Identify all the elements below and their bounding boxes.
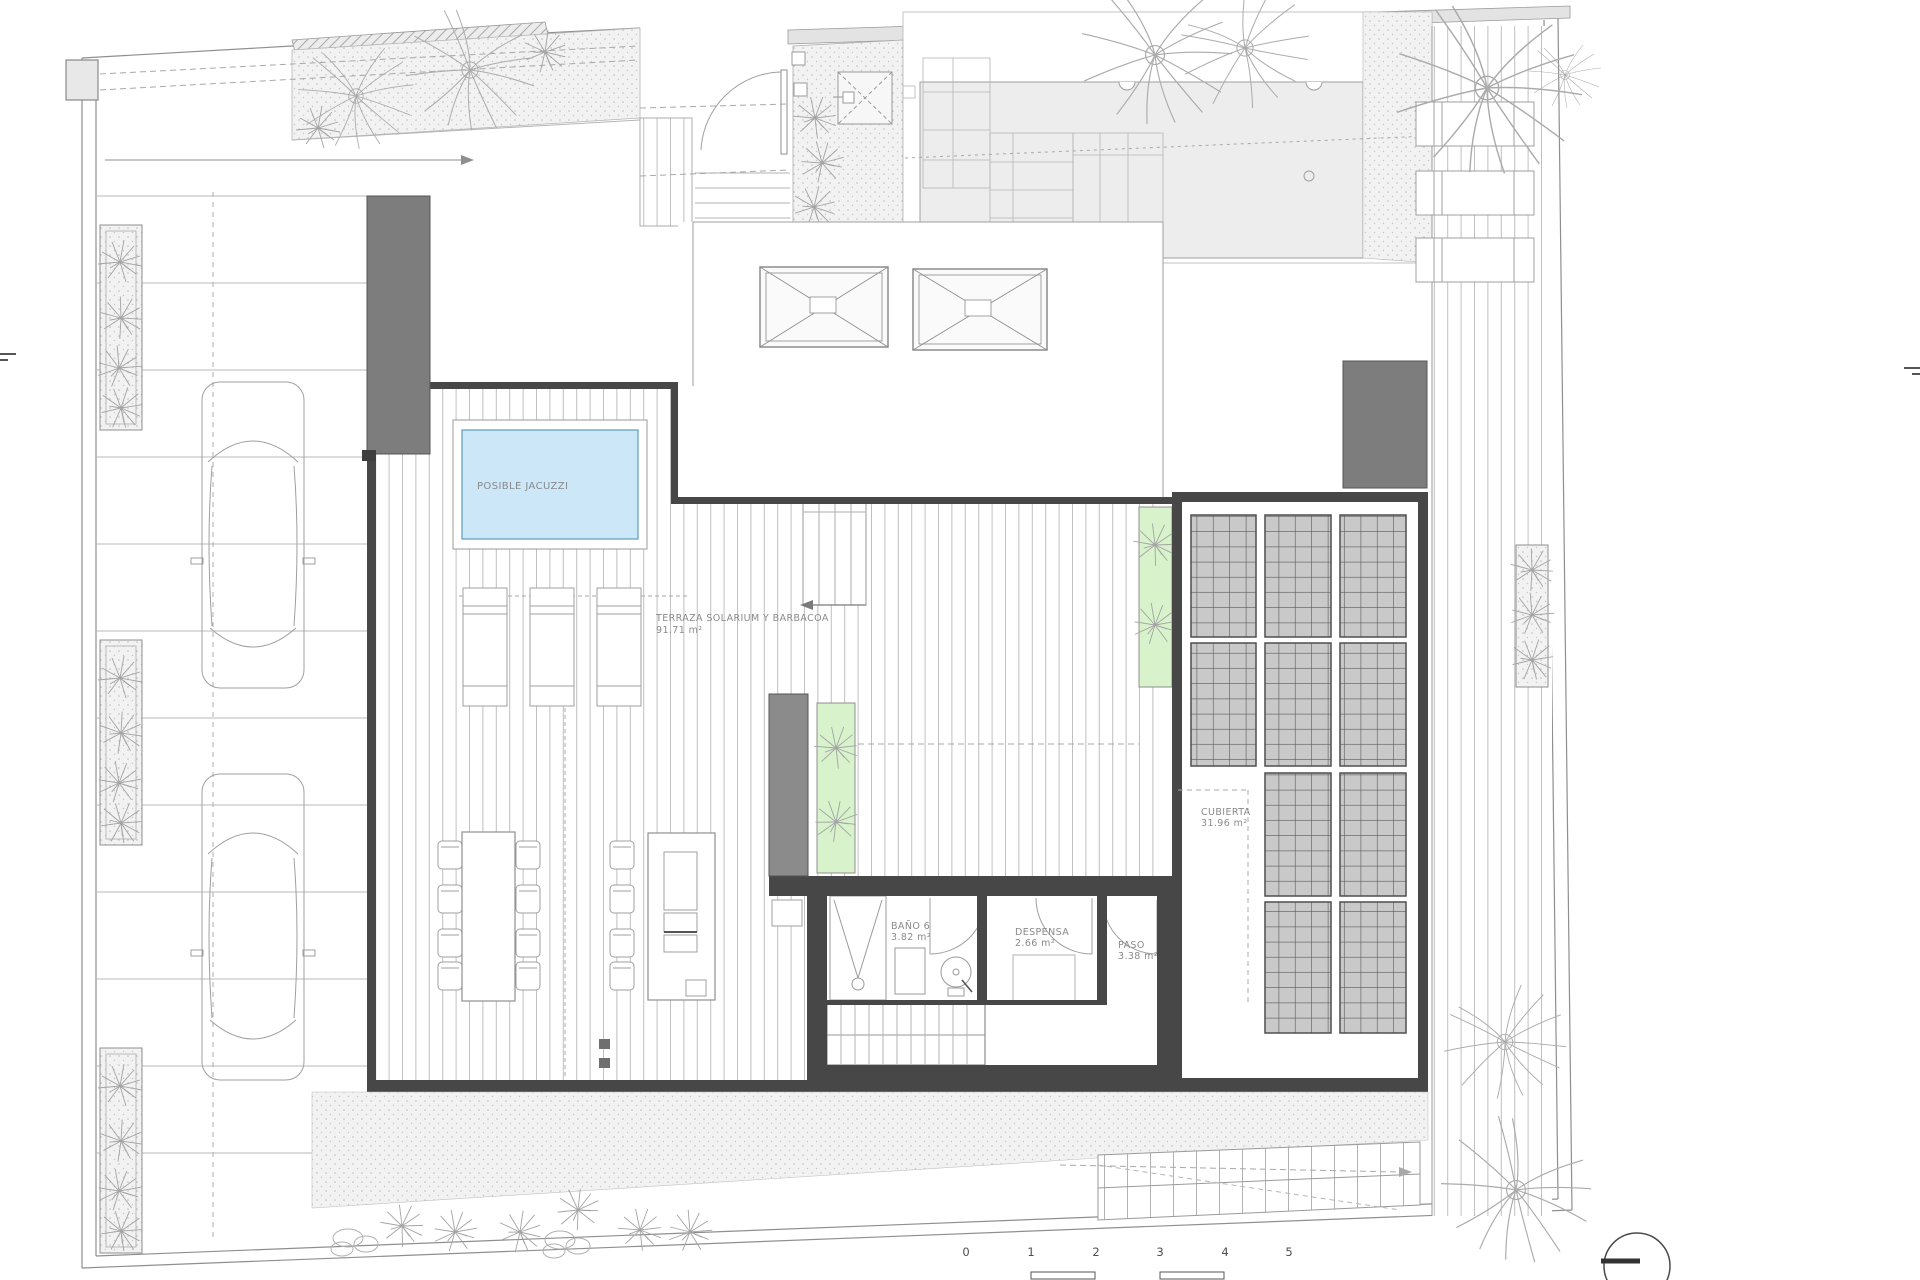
paso-name: PASO	[1118, 940, 1145, 951]
block-foot	[362, 450, 376, 461]
entry-door	[701, 70, 787, 154]
pergola-panel	[1340, 515, 1406, 637]
scale-tick-3: 3	[1156, 1245, 1163, 1259]
pergola-panel	[1191, 515, 1256, 637]
right-deck-strip	[1416, 26, 1563, 1216]
car-1	[191, 382, 315, 688]
shade-sail-2	[913, 269, 1047, 350]
terrace-name: TERRAZA SOLARIUM Y BARBACOA	[655, 613, 829, 624]
planter-box-left-1	[91, 225, 152, 437]
planter-box-left-2	[91, 640, 152, 853]
chair	[516, 962, 540, 990]
sun-lounger	[597, 588, 641, 706]
terrace-area: 91.71 m²	[656, 625, 702, 636]
chair	[516, 885, 540, 913]
floor-fixture	[772, 900, 802, 926]
entry-path-arrow	[105, 155, 474, 165]
chair	[438, 962, 462, 990]
deck-spotlight	[599, 1058, 610, 1068]
pergola-cubierta: CUBIERTA 31.96 m²	[1172, 492, 1428, 1092]
roof-volume-block	[769, 694, 808, 876]
stones-icon	[331, 1229, 378, 1256]
sun-lounger	[530, 588, 574, 706]
bar-stool	[610, 841, 634, 869]
stones-icon	[543, 1231, 590, 1258]
bano-area: 3.82 m²	[891, 932, 931, 943]
scale-segment	[1160, 1272, 1224, 1279]
chair	[516, 841, 540, 869]
pergola-panel	[1265, 773, 1331, 896]
pergola-panel	[1265, 902, 1331, 1033]
kitchen-island	[648, 833, 715, 1000]
sun-lounger	[463, 588, 507, 706]
despensa-name: DESPENSA	[1015, 927, 1069, 938]
scale-tick-2: 2	[1092, 1245, 1099, 1259]
deck-spotlight	[599, 1039, 610, 1049]
chair	[438, 929, 462, 957]
chair	[438, 885, 462, 913]
utility-box	[66, 60, 98, 100]
plant-icon	[663, 1205, 716, 1257]
stair-access	[800, 503, 866, 610]
dining-table	[462, 832, 515, 1001]
cubierta-name: CUBIERTA	[1201, 807, 1251, 818]
cubierta-area: 31.96 m²	[1201, 818, 1247, 829]
planter-box-left-3	[91, 1048, 152, 1261]
floor-fixture	[686, 980, 706, 996]
car-2	[191, 774, 315, 1080]
scale-tick-5: 5	[1285, 1245, 1292, 1259]
floor-plan-page: POSIBLE JACUZZI TERRAZA SOLARIUM Y BARBA…	[0, 0, 1920, 1280]
sun-lounger	[1416, 102, 1534, 146]
pergola-panel	[1191, 643, 1256, 766]
skylight	[833, 72, 892, 124]
pergola-panel	[1265, 515, 1331, 637]
sun-lounger	[1416, 171, 1534, 215]
jacuzzi-label: POSIBLE JACUZZI	[477, 481, 568, 492]
scale-tick-1: 1	[1027, 1245, 1034, 1259]
bar-stool	[610, 929, 634, 957]
pergola-panel	[1340, 643, 1406, 766]
despensa-area: 2.66 m²	[1015, 938, 1055, 949]
bath-block: BAÑO 6 3.82 m² DESPENSA 2.66 m² PASO 3.3…	[807, 876, 1172, 1092]
roof-volume-block	[1343, 361, 1427, 488]
pergola-panel	[1340, 773, 1406, 896]
staircase-down	[827, 1004, 985, 1065]
jacuzzi: POSIBLE JACUZZI	[453, 420, 647, 549]
pergola-panel	[1340, 902, 1406, 1033]
entry-garden-strip	[105, 22, 790, 226]
roof-volume-block	[367, 196, 430, 454]
bano-name: BAÑO 6	[891, 921, 930, 932]
bar-stool	[610, 962, 634, 990]
scale-tick-0: 0	[962, 1245, 969, 1259]
bar-stool	[610, 885, 634, 913]
scale-segment	[1031, 1272, 1095, 1279]
north-indicator	[1601, 1233, 1670, 1280]
entry-steps	[640, 118, 692, 226]
shade-sail-1	[760, 267, 888, 347]
post-marker	[794, 83, 807, 96]
paso-area: 3.38 m²	[1118, 951, 1158, 962]
pergola-panel	[1265, 643, 1331, 766]
chair	[438, 841, 462, 869]
floor-plan-drawing: POSIBLE JACUZZI TERRAZA SOLARIUM Y BARBA…	[0, 0, 1920, 1280]
post-marker	[792, 52, 805, 65]
scale-bar: 0 1 2 3 4 5	[962, 1245, 1292, 1279]
lower-roof-area	[678, 222, 1163, 498]
sun-lounger	[1416, 238, 1534, 282]
scale-tick-4: 4	[1221, 1245, 1228, 1259]
landing-steps	[695, 173, 790, 218]
plant-icon	[427, 1204, 483, 1259]
chair	[516, 929, 540, 957]
